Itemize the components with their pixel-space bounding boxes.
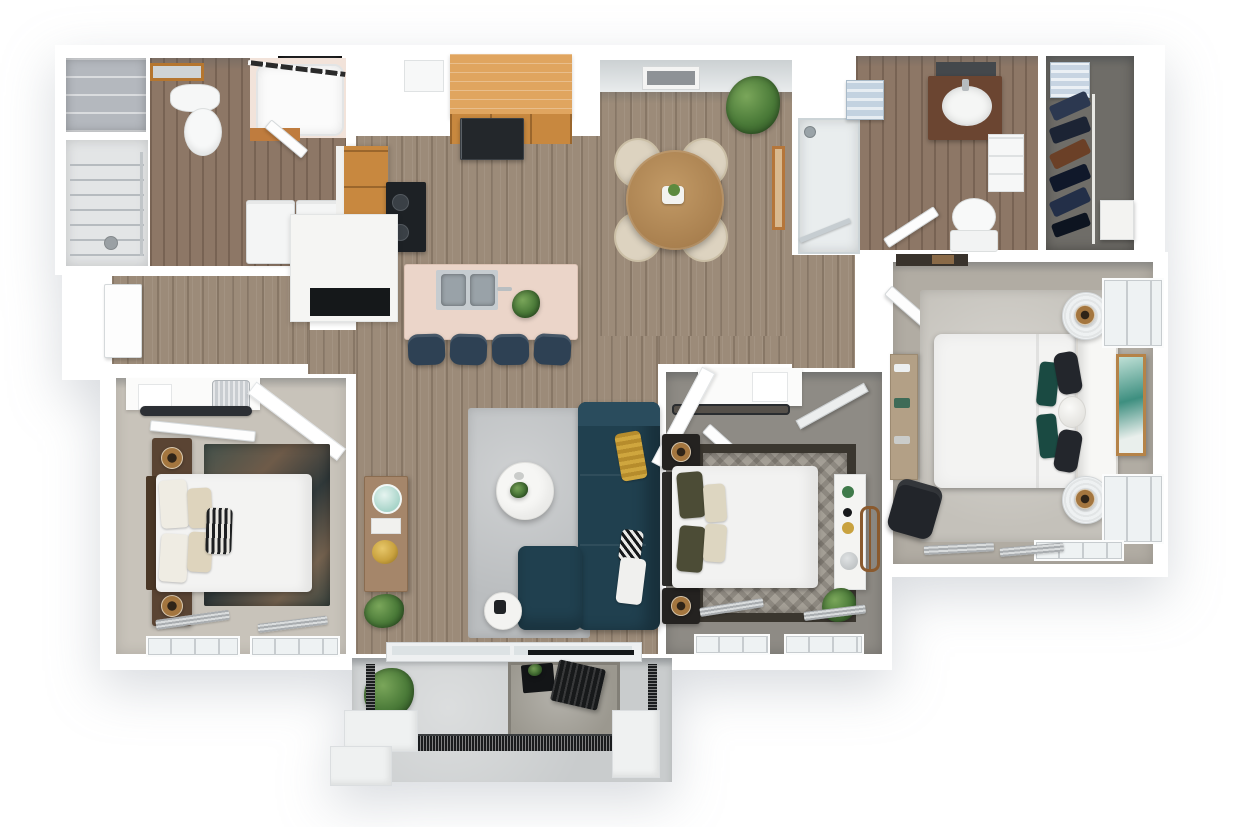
bath2-mirror — [936, 62, 996, 76]
master-duvet-fold — [1036, 334, 1039, 488]
pedestal-sink — [170, 84, 220, 112]
bed2-shelf-box — [752, 372, 788, 402]
bar-stool-4 — [533, 333, 572, 366]
refrigerator — [460, 118, 524, 160]
console-tray — [371, 518, 401, 534]
centerpiece-greens — [668, 184, 680, 196]
white-pillow — [615, 557, 646, 606]
desk-item-white — [894, 364, 910, 372]
bed2-olive-pillow-2 — [676, 525, 706, 573]
bed1-pillow-1 — [158, 479, 189, 529]
desk-item-green — [894, 398, 910, 408]
bed2-lamp-bottom — [671, 596, 691, 616]
master-teal-art — [1116, 354, 1146, 456]
aqua-glass-lamp — [372, 484, 402, 514]
utility-fixture — [104, 236, 118, 250]
dining-wall-art — [642, 66, 700, 90]
linen-closet-floor — [66, 58, 146, 132]
washer — [246, 200, 295, 264]
master-hall-floor — [792, 255, 855, 368]
vanity-mirror — [150, 63, 204, 81]
sliding-door-track — [528, 650, 634, 655]
closet-hanging-rod — [1092, 94, 1095, 244]
bed2-window-left — [694, 634, 770, 655]
bath2-toilet-tank — [950, 230, 998, 252]
bed2-console-black-decor — [843, 508, 852, 517]
planter-left-2 — [330, 746, 392, 786]
bed2-cream-pillow-2 — [703, 523, 728, 562]
master-desk — [890, 354, 918, 480]
wheel-wall-decor — [860, 506, 880, 572]
bed2-olive-pillow-1 — [676, 471, 706, 519]
shower-head — [804, 126, 816, 138]
sink-right — [470, 274, 495, 306]
bed1-window-right — [250, 636, 340, 657]
gold-bowl — [372, 540, 398, 564]
bath2-sink — [942, 86, 992, 126]
bed1-zebra-pillow — [205, 508, 233, 555]
master-window-top — [1102, 278, 1164, 348]
leaning-art-frame — [772, 146, 785, 230]
bar-stool-1 — [407, 333, 445, 365]
bed2-console-gray-ball — [840, 552, 858, 570]
sink-left — [441, 274, 466, 306]
bed1-window-left — [146, 636, 240, 657]
apartment-scene — [0, 0, 1240, 827]
bed2-window-right — [784, 634, 864, 655]
coffee-table-dish — [514, 472, 524, 480]
bath2-wall-shelf — [988, 134, 1024, 192]
towel-shelf — [846, 80, 884, 120]
hallway-connector-floor — [308, 330, 358, 374]
entry-door — [104, 284, 142, 358]
master-closet-wood — [932, 255, 954, 264]
bed1-lamp-top — [161, 447, 183, 469]
bar-stool-2 — [449, 333, 487, 365]
master-white-round-pillow — [1058, 396, 1086, 428]
bed2-console-gold-decor — [842, 522, 854, 534]
range-burner-1 — [392, 194, 409, 211]
island-niche — [310, 288, 390, 316]
bed2-lamp-top — [671, 442, 691, 462]
floorplan-3d-render — [0, 0, 1240, 827]
island-faucet — [497, 287, 512, 291]
bath2-faucet — [962, 79, 969, 91]
master-lamp-top — [1075, 305, 1095, 325]
sliding-door-pane-1 — [392, 646, 510, 655]
shelving-pole — [140, 152, 143, 256]
bed1-pillow-2 — [158, 533, 189, 583]
bed1-lamp-bottom — [161, 595, 183, 617]
bed1-hanging-clothes — [140, 406, 252, 416]
bedroom2-hall-strip — [658, 336, 792, 364]
master-lamp-bottom — [1075, 489, 1095, 509]
patio-rail-bottom — [402, 734, 616, 751]
bar-stool-3 — [492, 334, 530, 366]
bed2-cream-pillow-1 — [703, 483, 728, 522]
sofa-chaise — [518, 546, 582, 630]
bed2-console-plant-pot — [842, 486, 854, 498]
master-window-bottom-right — [1102, 474, 1164, 544]
side-table-decor — [494, 600, 506, 614]
toilet-bowl — [184, 108, 222, 156]
kitchen-wall-cabinet-box — [404, 60, 444, 92]
closet-drawer-unit — [1100, 200, 1134, 240]
kitchen-upper-counter — [450, 54, 572, 118]
desk-item-gray — [894, 436, 910, 444]
planter-right — [612, 710, 660, 778]
sofa-arm-top — [578, 402, 660, 426]
